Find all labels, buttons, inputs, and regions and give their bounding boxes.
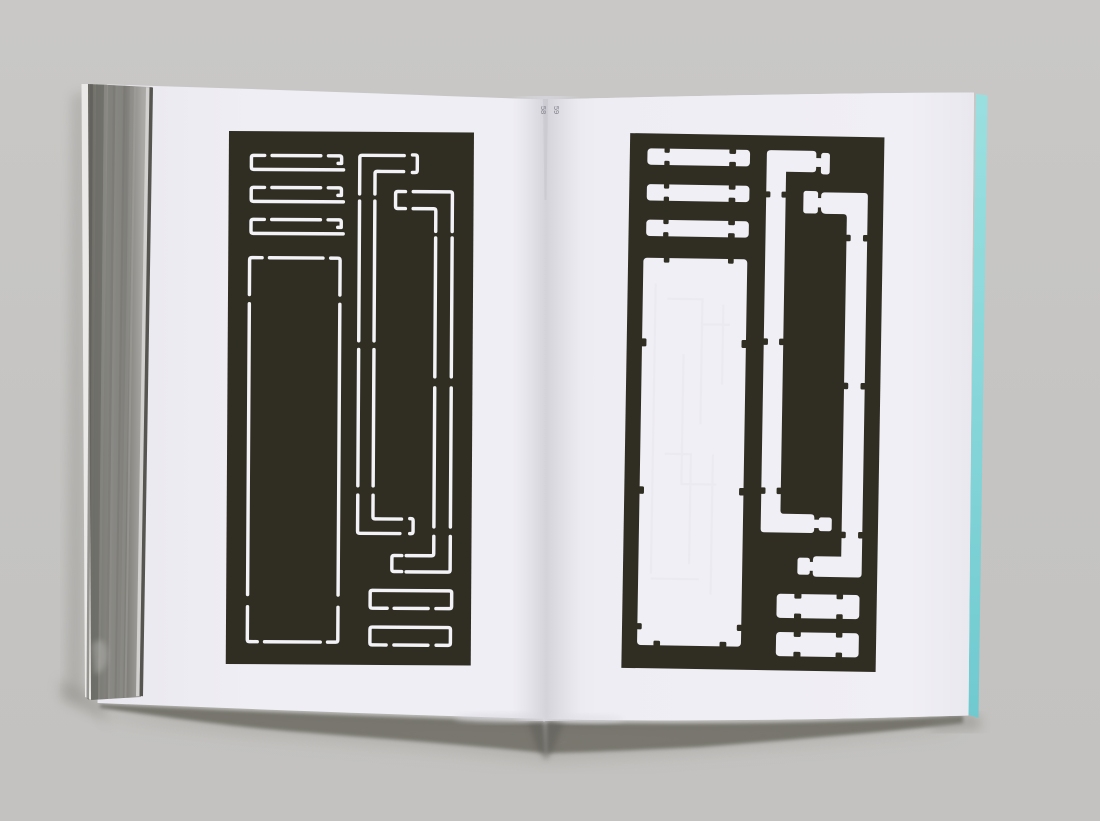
svg-text:58: 58 xyxy=(539,106,548,114)
svg-text:59: 59 xyxy=(552,106,561,114)
